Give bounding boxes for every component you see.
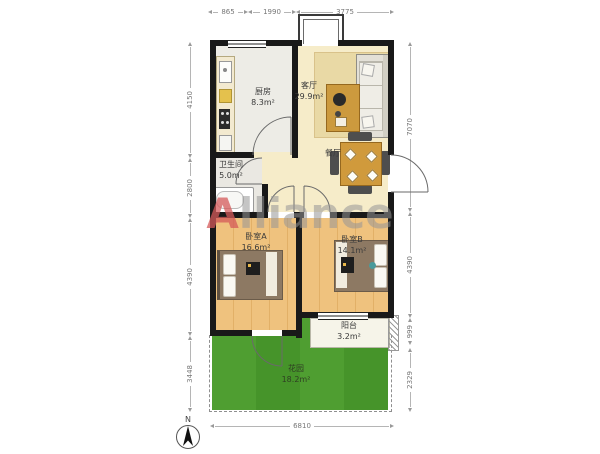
room-area: 3.2m² xyxy=(337,331,361,342)
dim-label: 6810 xyxy=(291,422,313,430)
sink-icon xyxy=(219,61,232,83)
table-decor-dark xyxy=(333,93,346,106)
wall-top-right xyxy=(338,40,394,46)
north-label: N xyxy=(174,416,202,424)
bed-pillow xyxy=(223,276,236,297)
sofa-pillow xyxy=(361,63,375,77)
dimension-top-1: 865 xyxy=(208,8,248,16)
room-label-kitchen: 厨房 8.3m² xyxy=(251,86,275,108)
room-area: 18.2m² xyxy=(282,374,311,385)
dining-chair xyxy=(348,132,372,141)
dim-label: 4390 xyxy=(406,254,414,276)
room-label-balcony: 阳台 3.2m² xyxy=(337,320,361,342)
wall-bedroom-a-bottom-left xyxy=(210,330,252,336)
bed-decor-dot xyxy=(369,262,376,269)
kitchen-window xyxy=(228,40,266,48)
watermark: Alliance xyxy=(203,193,397,235)
table-decor-white xyxy=(335,117,347,127)
wall-left xyxy=(210,40,216,336)
counter-appliance-icon xyxy=(219,135,232,151)
wall-bedroom-b-bottom-right xyxy=(368,312,394,318)
dimension-bottom-1: 6810 xyxy=(210,422,394,430)
room-name: 阳台 xyxy=(337,320,361,331)
counter-item-icon xyxy=(219,89,232,103)
dimension-right-3: 999 xyxy=(404,318,416,348)
bed-tray-dark xyxy=(246,262,260,275)
bed-a xyxy=(217,250,283,300)
dimension-left-2: 2800 xyxy=(184,158,196,218)
dimension-right-2: 4390 xyxy=(404,212,416,318)
room-name: 花园 xyxy=(282,363,311,374)
dim-label: 4150 xyxy=(186,89,194,111)
bed-pillow xyxy=(374,244,387,266)
wall-bedroom-b-bottom-left xyxy=(302,312,318,318)
dim-label: 2329 xyxy=(406,369,414,391)
dimension-left-3: 4390 xyxy=(184,218,196,336)
bed-pillow xyxy=(223,254,236,275)
dim-label: 7070 xyxy=(406,116,414,138)
room-area: 14.1m² xyxy=(338,245,367,256)
dim-label: 4390 xyxy=(186,266,194,288)
dim-label: 2800 xyxy=(186,177,194,199)
wall-right-upper xyxy=(388,40,394,155)
room-name: 客厅 xyxy=(295,80,324,91)
room-label-dining: 餐厅 xyxy=(325,147,341,158)
north-compass: N xyxy=(174,416,202,454)
dim-label: 1990 xyxy=(261,8,283,16)
dimension-left-1: 4150 xyxy=(184,42,196,158)
sofa xyxy=(356,54,390,138)
dim-label: 865 xyxy=(219,8,236,16)
compass-needle-icon xyxy=(175,424,201,450)
room-name: 餐厅 xyxy=(325,147,341,158)
room-name: 厨房 xyxy=(251,86,275,97)
room-area: 16.6m² xyxy=(242,242,271,253)
dimension-top-2: 1990 xyxy=(248,8,296,16)
dim-label: 999 xyxy=(406,323,414,340)
room-label-living: 客厅 29.9m² xyxy=(295,80,324,102)
bed-foot-runner xyxy=(266,252,277,296)
wall-bedroom-a-bottom-right xyxy=(282,330,302,336)
dining-set xyxy=(330,132,390,194)
room-area: 8.3m² xyxy=(251,97,275,108)
entrance-door-frame-inner xyxy=(303,19,339,44)
dining-table xyxy=(340,142,382,186)
balcony-railing xyxy=(388,315,399,351)
room-name: 卫生间 xyxy=(219,159,243,170)
room-label-bathroom: 卫生间 5.0m² xyxy=(219,159,243,181)
kitchen-counter xyxy=(216,56,235,158)
watermark-text: lliance xyxy=(239,189,394,238)
wall-kitchen-bottom xyxy=(210,152,254,158)
dim-label: 3448 xyxy=(186,363,194,385)
bed-tray-dark xyxy=(341,257,354,273)
sofa-pillow xyxy=(361,115,375,129)
watermark-letter: A xyxy=(206,189,239,238)
room-label-garden: 花园 18.2m² xyxy=(282,363,311,385)
bed-pillow xyxy=(374,267,387,288)
coffee-table xyxy=(326,84,360,132)
room-area: 29.9m² xyxy=(295,91,324,102)
dimension-right-4: 2329 xyxy=(404,348,416,412)
dimension-left-4: 3448 xyxy=(184,336,196,412)
dimension-right-1: 7070 xyxy=(404,42,416,212)
balcony-sliding-window xyxy=(318,312,368,320)
room-area: 5.0m² xyxy=(219,170,243,181)
stove-icon xyxy=(219,109,230,129)
